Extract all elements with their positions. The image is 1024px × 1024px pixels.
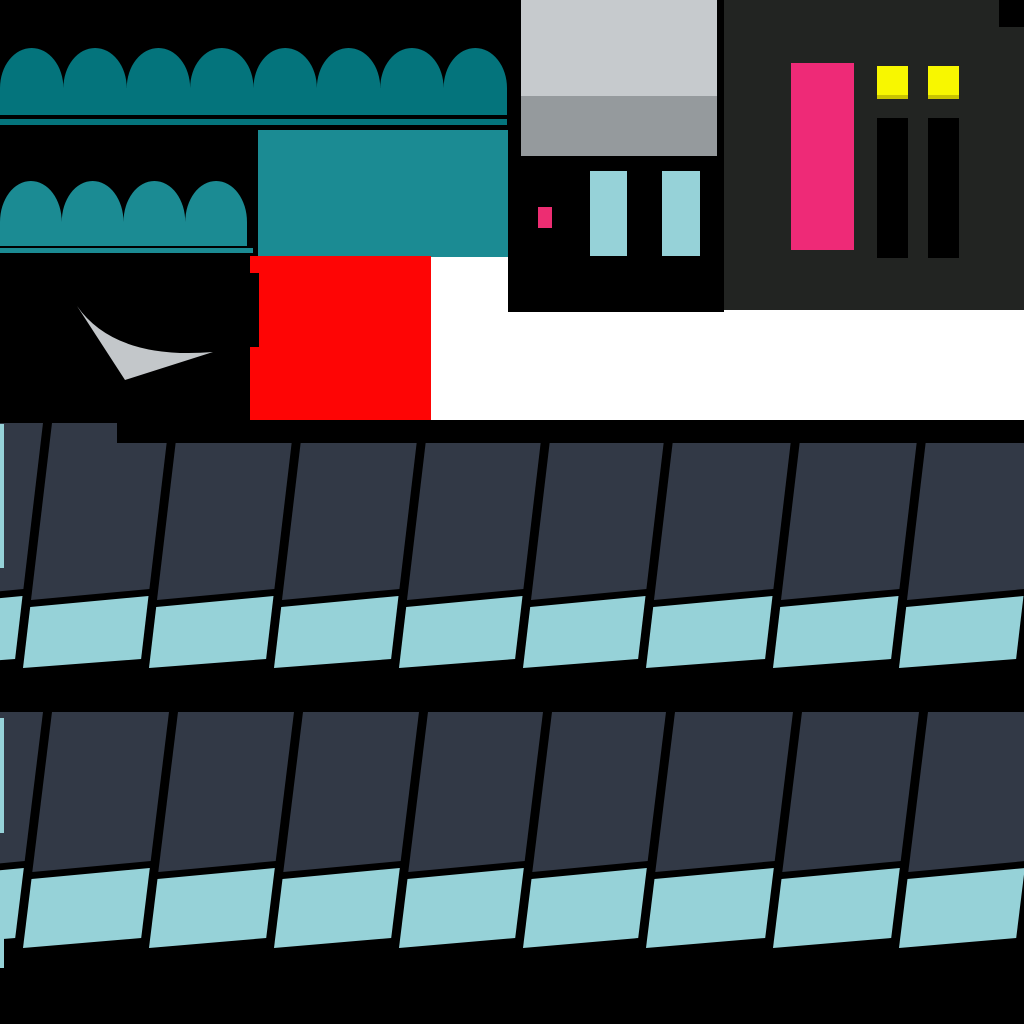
- window-pane-top: [521, 0, 717, 96]
- row-top-panel-teal-8: [899, 596, 1024, 668]
- interior-pink-box: [538, 207, 552, 228]
- row-top-panel-dark-2: [157, 423, 294, 600]
- building-pillar-1: [877, 118, 908, 258]
- building-window-2: [928, 66, 959, 99]
- row-bottom-panel-teal-8: [899, 868, 1024, 948]
- storefront-window: [508, 0, 724, 312]
- row-top-panel-teal-2: [149, 596, 274, 668]
- row-bottom-panel-dark-2: [158, 712, 294, 872]
- red-rect: [250, 256, 431, 420]
- edge-sliver-1: [0, 424, 4, 568]
- panel-row-top: [0, 423, 1024, 668]
- row-top-panel-teal-7: [773, 596, 899, 668]
- row-bottom-panel-teal-5: [523, 868, 647, 948]
- red-rect-notch: [250, 273, 259, 347]
- row-top-panel-teal-4: [399, 596, 523, 668]
- building-window-shade-1: [877, 95, 908, 99]
- row-top-panel-dark-5: [531, 423, 666, 600]
- row-top-panel-teal-3: [274, 596, 399, 668]
- awning-small-underline: [0, 248, 253, 253]
- row-bottom-panel-teal-2: [149, 868, 275, 948]
- row-bottom-panel-dark-1: [32, 712, 169, 872]
- sprite-sheet: [0, 0, 1024, 1024]
- row-top-panel-dark-3: [282, 423, 419, 600]
- row-top-panel-dark-1: [31, 423, 169, 600]
- red-block: [250, 256, 431, 420]
- window-pane-bottom: [521, 96, 717, 156]
- building-door: [791, 63, 854, 250]
- top-step-bar: [117, 420, 1024, 443]
- panel-row-bottom: [0, 712, 1024, 948]
- dark-building: [724, 0, 1024, 310]
- teal-canopy-rect: [258, 130, 510, 257]
- row-bottom-panel-dark-6: [655, 712, 793, 872]
- edge-sliver-2: [0, 718, 4, 833]
- interior-teal-bar-2: [662, 171, 700, 256]
- atlas-canvas: [0, 0, 1024, 1024]
- row-top-panel-dark-7: [781, 423, 919, 600]
- row-bottom-panel-teal-6: [646, 868, 774, 948]
- row-bottom-panel-teal-4: [399, 868, 524, 948]
- edge-sliver-3: [0, 880, 4, 968]
- row-bottom-panel-dark-3: [283, 712, 419, 872]
- top-black-bar: [117, 420, 1024, 443]
- awning-large-underline: [0, 119, 507, 125]
- canopy-rect: [258, 130, 510, 257]
- building-pillar-2: [928, 118, 959, 258]
- row-top-panel-teal-1: [23, 596, 149, 668]
- row-bottom-panel-dark-7: [782, 712, 919, 872]
- building-window-1: [877, 66, 908, 99]
- row-bottom-panel-dark-4: [408, 712, 543, 872]
- row-top-panel-dark-6: [654, 423, 793, 600]
- row-bottom-panel-teal-1: [23, 868, 150, 948]
- row-bottom-panel-dark-8: [908, 712, 1024, 872]
- interior-teal-bar-1: [590, 171, 627, 256]
- row-top-panel-dark-4: [407, 423, 543, 600]
- row-bottom-panel-teal-7: [773, 868, 900, 948]
- building-window-shade-2: [928, 95, 959, 99]
- building-corner-notch: [999, 0, 1024, 27]
- row-top-panel-teal-6: [646, 596, 773, 668]
- building-body: [724, 0, 1024, 310]
- row-bottom-panel-teal-3: [274, 868, 400, 948]
- row-top-panel-teal-5: [523, 596, 646, 668]
- row-bottom-panel-dark-5: [532, 712, 666, 872]
